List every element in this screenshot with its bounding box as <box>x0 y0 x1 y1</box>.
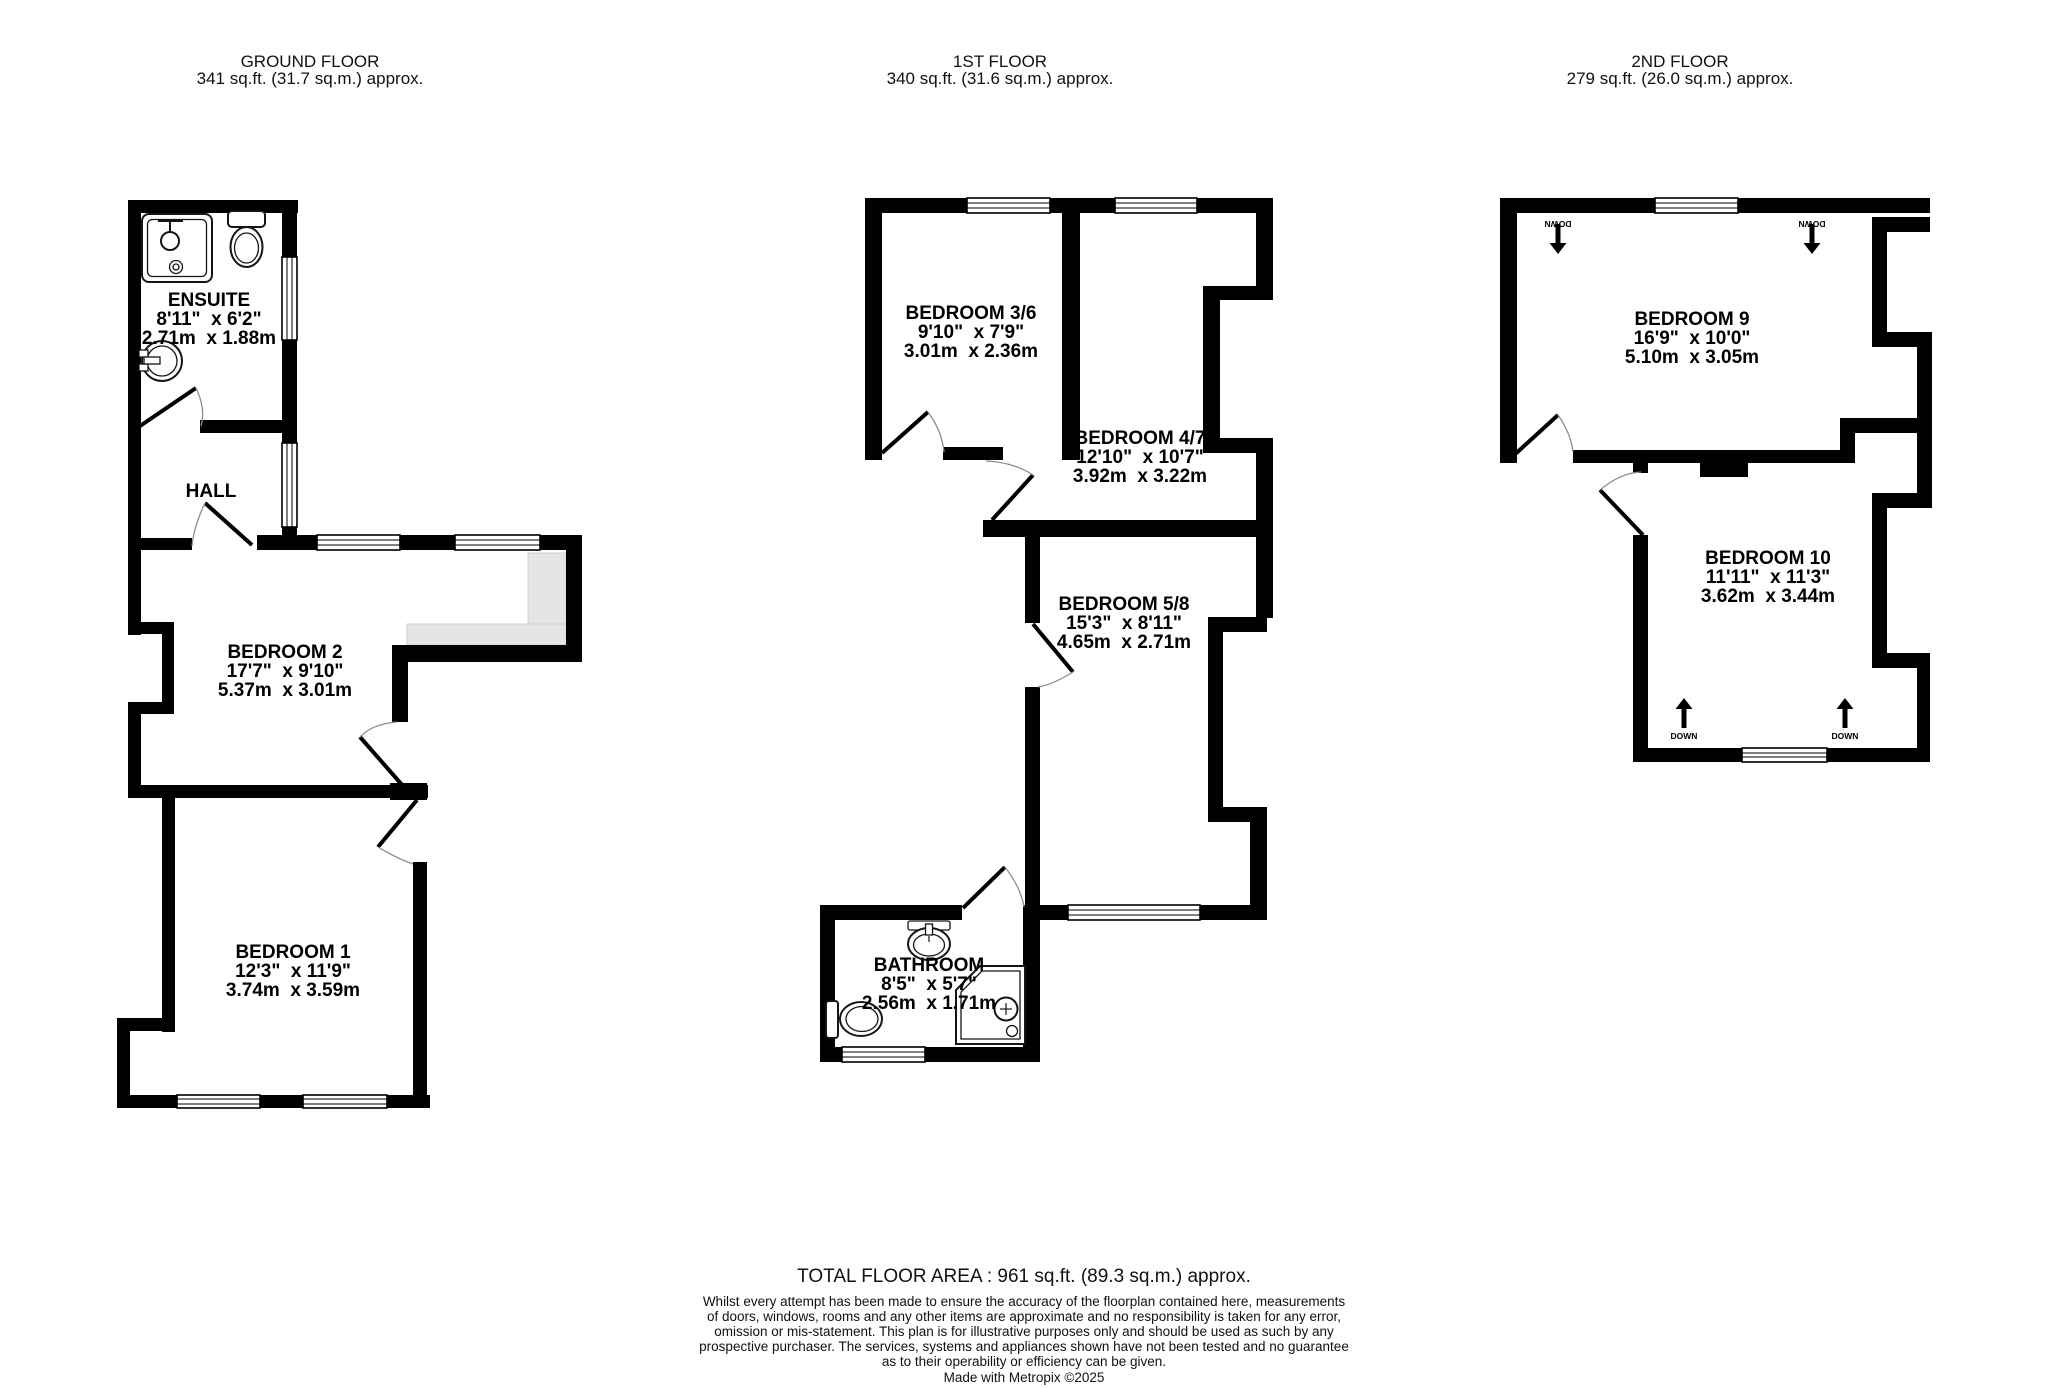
bedroom58-label: BEDROOM 5/8 15'3" x 8'11" 4.65m x 2.71m <box>1057 594 1191 653</box>
room-name: BATHROOM <box>874 955 984 976</box>
window <box>967 198 1050 213</box>
room-dimensions-imperial: 9'10" x 7'9" <box>918 322 1024 343</box>
credit-line: Made with Metropix ©2025 <box>944 1370 1105 1385</box>
door <box>1512 415 1573 457</box>
room-dimensions-imperial: 16'9" x 10'0" <box>1634 328 1751 349</box>
door <box>378 800 417 864</box>
window <box>282 257 297 340</box>
bathroom-label: BATHROOM 8'5" x 5'7" 2.56m x 1.71m <box>862 955 996 1014</box>
first-floor-walls <box>820 198 1273 1062</box>
disclaimer-line: as to their operability or efficiency ca… <box>882 1354 1166 1369</box>
window <box>455 535 540 550</box>
door <box>192 503 252 546</box>
room-dimensions-metric: 5.37m x 3.01m <box>218 680 352 701</box>
door <box>963 867 1024 908</box>
room-dimensions-imperial: 12'10" x 10'7" <box>1076 447 1203 468</box>
window <box>1115 198 1197 213</box>
door <box>1600 472 1643 535</box>
room-name: BEDROOM 2 <box>227 642 342 663</box>
stairs-down-label: DOWN <box>1832 731 1859 741</box>
ground-floor-area: 341 sq.ft. (31.7 sq.m.) approx. <box>197 69 424 88</box>
disclaimer-line: omission or mis-statement. This plan is … <box>714 1324 1334 1339</box>
room-name: ENSUITE <box>168 290 250 311</box>
room-dimensions-imperial: 12'3" x 11'9" <box>235 961 351 982</box>
room-dimensions-metric: 3.62m x 3.44m <box>1701 586 1835 607</box>
room-dimensions-imperial: 8'5" x 5'7" <box>881 974 977 995</box>
stairs-down-indicator: DOWN <box>1832 698 1859 741</box>
first-floor-section: 1ST FLOOR 340 sq.ft. (31.6 sq.m.) approx… <box>820 52 1273 1062</box>
room-dimensions-imperial: 15'3" x 8'11" <box>1066 613 1182 634</box>
bedroom1-label: BEDROOM 1 12'3" x 11'9" 3.74m x 3.59m <box>226 942 360 1001</box>
reduced-headroom-area <box>407 624 566 645</box>
room-name: BEDROOM 5/8 <box>1059 594 1190 615</box>
room-dimensions-metric: 5.10m x 3.05m <box>1625 347 1759 368</box>
bedroom36-label: BEDROOM 3/6 9'10" x 7'9" 3.01m x 2.36m <box>904 303 1038 362</box>
stairs-down-label: DOWN <box>1671 731 1698 741</box>
window <box>1742 748 1827 762</box>
stairs-down-indicator: DOWN <box>1671 698 1698 741</box>
room-dimensions-metric: 2.56m x 1.71m <box>862 993 996 1014</box>
floorplan-image: GROUND FLOOR 341 sq.ft. (31.7 sq.m.) app… <box>0 0 2048 1388</box>
footer-section: TOTAL FLOOR AREA : 961 sq.ft. (89.3 sq.m… <box>699 1266 1349 1385</box>
bedroom47-label: BEDROOM 4/7 12'10" x 10'7" 3.92m x 3.22m <box>1073 428 1207 487</box>
room-dimensions-metric: 4.65m x 2.71m <box>1057 632 1191 653</box>
room-name: BEDROOM 9 <box>1634 309 1749 330</box>
window <box>177 1095 260 1108</box>
room-dimensions-metric: 3.74m x 3.59m <box>226 980 360 1001</box>
window <box>1655 198 1738 213</box>
window <box>303 1095 387 1108</box>
room-dimensions-metric: 3.92m x 3.22m <box>1073 466 1207 487</box>
bedroom9-label: BEDROOM 9 16'9" x 10'0" 5.10m x 3.05m <box>1625 309 1759 368</box>
up-arrow-icon <box>1676 698 1693 728</box>
room-name: BEDROOM 10 <box>1705 548 1831 569</box>
bedroom10-label: BEDROOM 10 11'11" x 11'3" 3.62m x 3.44m <box>1701 548 1835 607</box>
room-dimensions-imperial: 8'11" x 6'2" <box>156 309 261 330</box>
door <box>140 388 203 426</box>
room-dimensions-metric: 3.01m x 2.36m <box>904 341 1038 362</box>
first-floor-area: 340 sq.ft. (31.6 sq.m.) approx. <box>887 69 1114 88</box>
window <box>317 535 400 550</box>
window <box>1068 905 1200 920</box>
room-dimensions-imperial: 11'11" x 11'3" <box>1706 567 1830 588</box>
disclaimer-line: of doors, windows, rooms and any other i… <box>707 1309 1341 1324</box>
disclaimer-line: prospective purchaser. The services, sys… <box>699 1339 1349 1354</box>
door <box>986 461 1033 520</box>
room-dimensions-metric: 2.71m x 1.88m <box>142 328 276 349</box>
toilet-icon <box>228 211 265 267</box>
stairs-down-indicator: DOWN <box>1799 219 1826 254</box>
room-dimensions-imperial: 17'7" x 9'10" <box>227 661 344 682</box>
ensuite-label: ENSUITE 8'11" x 6'2" 2.71m x 1.88m <box>142 290 276 349</box>
second-floor-walls <box>1500 198 1932 762</box>
second-floor-section: 2ND FLOOR 279 sq.ft. (26.0 sq.m.) approx… <box>1500 52 1932 762</box>
room-name: BEDROOM 1 <box>235 942 351 963</box>
room-name: BEDROOM 4/7 <box>1075 428 1206 449</box>
door <box>360 722 403 786</box>
up-arrow-icon <box>1837 698 1854 728</box>
stairs-down-indicator: DOWN <box>1545 219 1572 254</box>
window <box>282 443 297 527</box>
second-floor-area: 279 sq.ft. (26.0 sq.m.) approx. <box>1567 69 1794 88</box>
ground-floor-section: GROUND FLOOR 341 sq.ft. (31.7 sq.m.) app… <box>117 52 582 1108</box>
room-name: BEDROOM 3/6 <box>906 303 1037 324</box>
door <box>882 412 944 453</box>
hall-label: HALL <box>186 481 237 502</box>
disclaimer-line: Whilst every attempt has been made to en… <box>703 1294 1346 1309</box>
shower-icon <box>142 214 212 282</box>
floorplan-page: GROUND FLOOR 341 sq.ft. (31.7 sq.m.) app… <box>0 0 2048 1388</box>
total-floor-area: TOTAL FLOOR AREA : 961 sq.ft. (89.3 sq.m… <box>797 1266 1251 1287</box>
bedroom2-label: BEDROOM 2 17'7" x 9'10" 5.37m x 3.01m <box>218 642 352 701</box>
window <box>842 1047 925 1062</box>
